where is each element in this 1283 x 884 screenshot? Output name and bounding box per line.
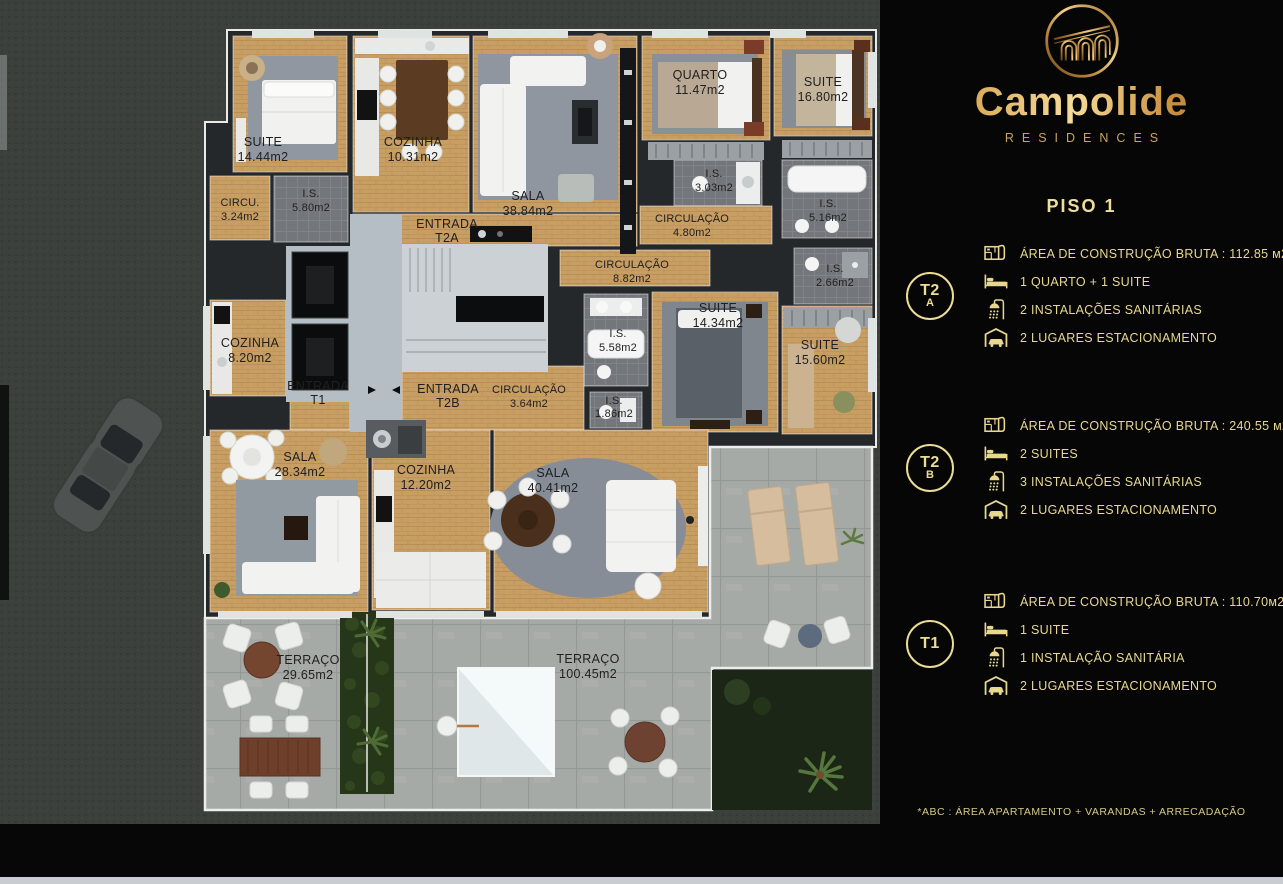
info-panel: Campolide RESIDENCES PISO 1 T2 A ÁREA DE…: [880, 0, 1283, 884]
floor-plan-rendering: SUITE 14.44m2 CIRCU. 3.24m2 I.S. 5.80m2 …: [0, 0, 880, 884]
page: SUITE 14.44m2 CIRCU. 3.24m2 I.S. 5.80m2 …: [0, 0, 1283, 884]
floorplan-icon: [984, 243, 1008, 264]
svg-text:I.S.: I.S.: [605, 395, 622, 407]
garage-icon: [984, 499, 1008, 520]
svg-text:ENTRADA: ENTRADA: [416, 217, 478, 231]
svg-text:I.S.: I.S.: [826, 263, 843, 275]
unit-badge-t2a: T2 A: [906, 272, 954, 320]
svg-text:3.64m2: 3.64m2: [510, 398, 548, 410]
unit-spec-t2a: T2 A ÁREA DE CONSTRUÇÃO BRUTA : 112.85 м…: [880, 244, 1283, 347]
spec-row-parking: 2 LUGARES ESTACIONAMENTO: [984, 328, 1283, 347]
hall-entrada-t2b: [402, 366, 584, 430]
spec-row-bathrooms: 2 INSTALAÇÕES SANITÁRIAS: [984, 300, 1283, 319]
unit-badge-t1: T1: [906, 620, 954, 668]
svg-text:16.80m2: 16.80m2: [798, 90, 849, 104]
svg-text:15.60m2: 15.60m2: [795, 353, 846, 367]
svg-text:SALA: SALA: [511, 189, 545, 203]
spec-row-area: ÁREA DE CONSTRUÇÃO BRUTA : 110.70м2*: [984, 592, 1283, 611]
svg-text:10.31m2: 10.31m2: [388, 150, 439, 164]
svg-text:QUARTO: QUARTO: [673, 68, 728, 82]
floorplan-icon: [984, 415, 1008, 436]
svg-text:SALA: SALA: [536, 466, 570, 480]
bed-icon: [984, 443, 1008, 464]
bottom-edge-strip: [0, 877, 1283, 884]
svg-text:14.44m2: 14.44m2: [238, 150, 289, 164]
svg-text:2.66m2: 2.66m2: [816, 277, 854, 289]
svg-text:SALA: SALA: [283, 450, 317, 464]
svg-text:SUITE: SUITE: [804, 75, 842, 89]
svg-text:38.84m2: 38.84m2: [503, 204, 554, 218]
brand-subtitle: RESIDENCES: [880, 131, 1283, 145]
spec-row-area: ÁREA DE CONSTRUÇÃO BRUTA : 240.55 м2*: [984, 416, 1283, 435]
svg-text:T2B: T2B: [436, 396, 460, 410]
brand-name: Campolide: [880, 80, 1283, 125]
aqueduct-logo-icon: [1043, 2, 1121, 80]
svg-text:CIRCULAÇÃO: CIRCULAÇÃO: [595, 258, 669, 271]
svg-text:SUITE: SUITE: [244, 135, 282, 149]
spec-row-bedrooms: 2 SUITES: [984, 444, 1283, 463]
garden: [712, 670, 872, 810]
bed-icon: [984, 271, 1008, 292]
hedge-strip: [340, 612, 394, 794]
floorplan-icon: [984, 591, 1008, 612]
svg-text:12.20m2: 12.20m2: [401, 478, 452, 492]
svg-text:I.S.: I.S.: [705, 168, 722, 180]
spec-row-bedrooms: 1 SUITE: [984, 620, 1283, 639]
garage-icon: [984, 675, 1008, 696]
abc-footnote: *ABC : ÁREA APARTAMENTO + VARANDAS + ARR…: [880, 806, 1283, 818]
svg-text:5.16m2: 5.16m2: [809, 212, 847, 224]
spec-row-bathrooms: 1 INSTALAÇÃO SANITÁRIA: [984, 648, 1283, 667]
svg-text:CIRCULAÇÃO: CIRCULAÇÃO: [655, 212, 729, 225]
svg-text:8.82m2: 8.82m2: [613, 273, 651, 285]
floor-title: PISO 1: [880, 196, 1283, 217]
shower-icon: [984, 471, 1008, 492]
svg-text:4.80m2: 4.80m2: [673, 227, 711, 239]
svg-text:100.45m2: 100.45m2: [559, 667, 617, 681]
unit-spec-t1: T1 ÁREA DE CONSTRUÇÃO BRUTA : 110.70м2* …: [880, 592, 1283, 695]
svg-text:COZINHA: COZINHA: [384, 135, 443, 149]
svg-text:T2A: T2A: [435, 231, 459, 245]
bed-icon: [984, 619, 1008, 640]
svg-text:ENTRADA: ENTRADA: [287, 379, 349, 393]
svg-text:CIRCULAÇÃO: CIRCULAÇÃO: [492, 383, 566, 396]
svg-text:I.S.: I.S.: [302, 188, 319, 200]
shower-icon: [984, 299, 1008, 320]
svg-text:28.34m2: 28.34m2: [275, 465, 326, 479]
svg-text:SUITE: SUITE: [699, 301, 737, 315]
svg-text:5.58m2: 5.58m2: [599, 342, 637, 354]
svg-text:CIRCU.: CIRCU.: [220, 197, 259, 209]
spec-row-parking: 2 LUGARES ESTACIONAMENTO: [984, 500, 1283, 519]
unit-badge-t2b: T2 B: [906, 444, 954, 492]
svg-text:5.80m2: 5.80m2: [292, 202, 330, 214]
shower-icon: [984, 647, 1008, 668]
svg-text:3.24m2: 3.24m2: [221, 211, 259, 223]
svg-text:COZINHA: COZINHA: [397, 463, 456, 477]
svg-text:I.S.: I.S.: [609, 328, 626, 340]
svg-text:1.86m2: 1.86m2: [595, 408, 633, 420]
svg-text:ENTRADA: ENTRADA: [417, 382, 479, 396]
spec-row-bathrooms: 3 INSTALAÇÕES SANITÁRIAS: [984, 472, 1283, 491]
svg-text:TERRAÇO: TERRAÇO: [556, 652, 619, 666]
unit-spec-t2b: T2 B ÁREA DE CONSTRUÇÃO BRUTA : 240.55 м…: [880, 416, 1283, 519]
spec-row-area: ÁREA DE CONSTRUÇÃO BRUTA : 112.85 м2*: [984, 244, 1283, 263]
svg-text:29.65m2: 29.65m2: [283, 668, 334, 682]
brand-logo: [880, 2, 1283, 80]
svg-text:8.20m2: 8.20m2: [228, 351, 272, 365]
svg-text:14.34m2: 14.34m2: [693, 316, 744, 330]
svg-text:COZINHA: COZINHA: [221, 336, 280, 350]
svg-text:40.41m2: 40.41m2: [528, 481, 579, 495]
svg-text:I.S.: I.S.: [819, 198, 836, 210]
svg-text:SUITE: SUITE: [801, 338, 839, 352]
garage-icon: [984, 327, 1008, 348]
spec-row-parking: 2 LUGARES ESTACIONAMENTO: [984, 676, 1283, 695]
svg-text:TERRAÇO: TERRAÇO: [276, 653, 339, 667]
svg-text:11.47m2: 11.47m2: [675, 83, 725, 97]
svg-text:T1: T1: [310, 393, 325, 407]
svg-text:3.03m2: 3.03m2: [695, 182, 733, 194]
spec-row-bedrooms: 1 QUARTO + 1 SUITE: [984, 272, 1283, 291]
